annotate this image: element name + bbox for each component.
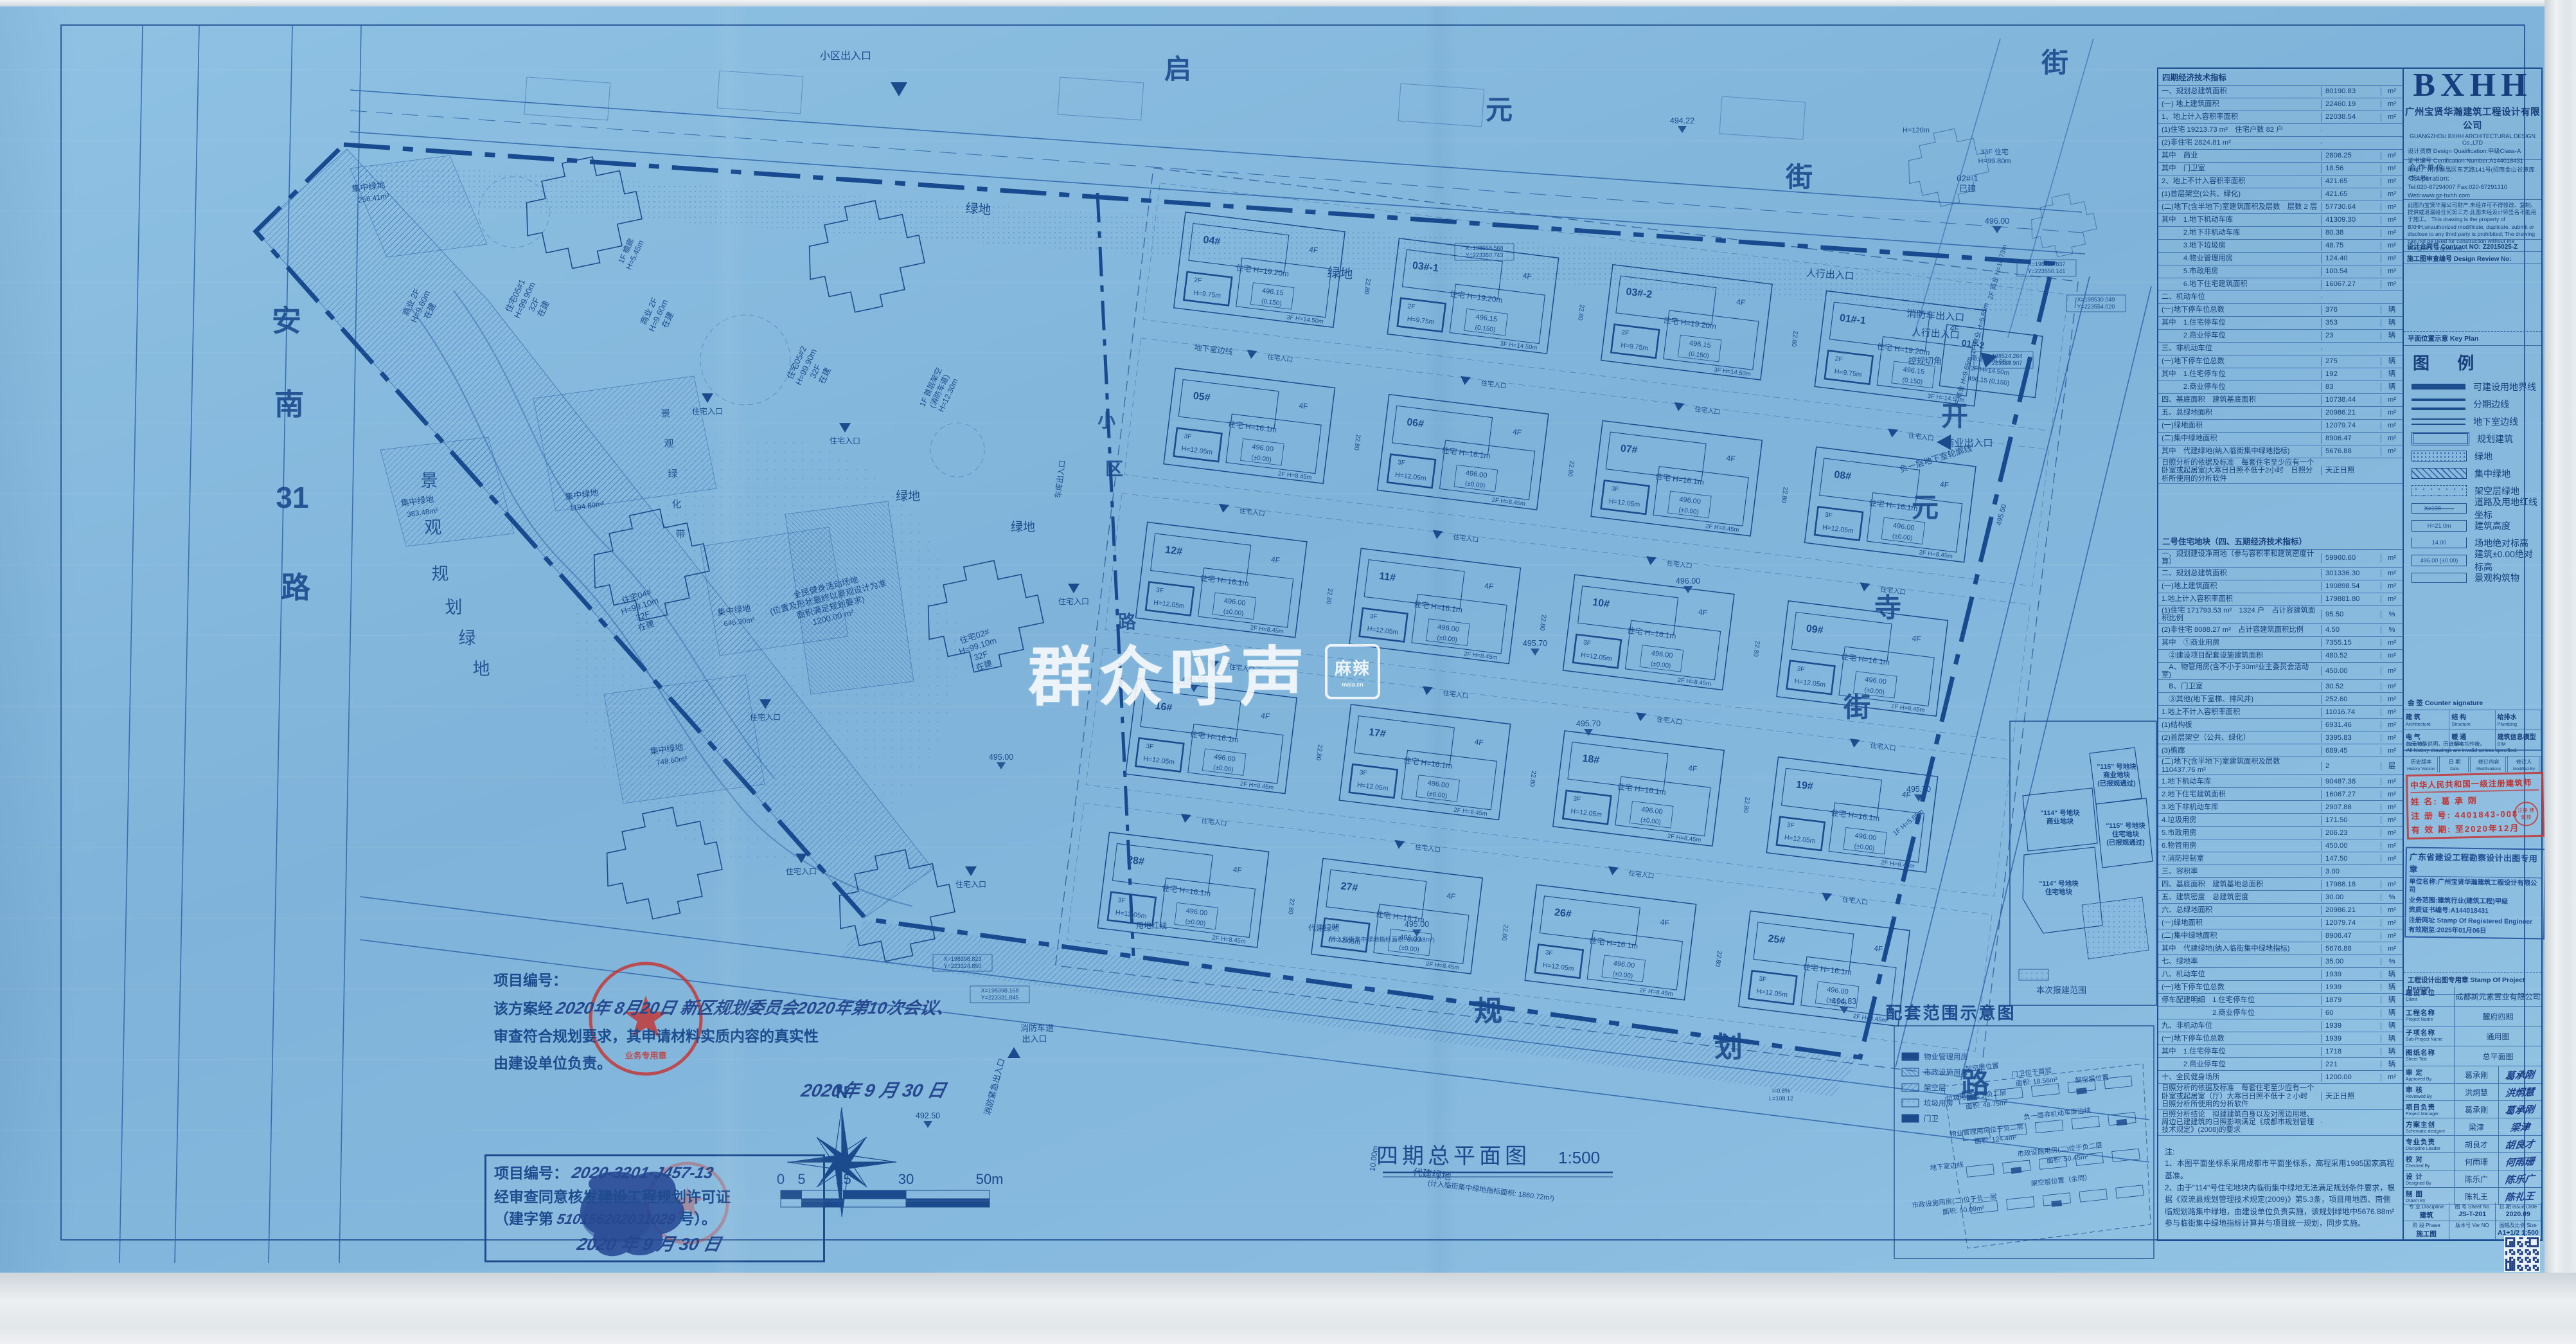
- qr-cell: [2513, 1241, 2515, 1243]
- plan-label: 住宅入口: [1239, 506, 1265, 518]
- plan-label: H=12.05m: [1570, 807, 1603, 819]
- qr-cell: [2505, 1267, 2507, 1269]
- building-outline: [2032, 193, 2097, 256]
- entry-arrow: [1646, 556, 1657, 566]
- entry-arrow: [1208, 660, 1219, 670]
- plan-label: 19#: [1795, 779, 1814, 792]
- blueprint-sheet: 04#4F住宅 H=19.20m2FH=9.75m496.15(0.150)3F…: [0, 6, 2545, 1273]
- handwriting: 2020年 8月20日 新区规划委员会2020年第10次会议、: [554, 995, 956, 1019]
- selev-swatch: 14.00: [2412, 537, 2467, 548]
- plan-label: 3F: [1759, 976, 1767, 983]
- cluster-part: [1387, 454, 1435, 488]
- entry-arrow: [702, 393, 713, 403]
- history-col: 历史版本History Version: [2404, 757, 2440, 773]
- qr-cell: [2527, 1257, 2529, 1259]
- plan-label: X=198398.823: [944, 956, 982, 962]
- plan-label: 划: [445, 598, 463, 617]
- plan-label: 面积: 124.4m²: [1975, 1134, 2018, 1146]
- road-name-ne: 街: [2041, 48, 2068, 78]
- plan-label: (已报规通过): [2106, 838, 2145, 847]
- copyright-panel: 此图为宝贤华瀚公司财产,未经许可不得修改、复制、提供或泄漏给任何第三方;此图未经…: [2404, 200, 2541, 240]
- table2-row: (一)地上建筑面积190898.54m²: [2158, 580, 2403, 593]
- plan-label: 架空层: [1924, 1083, 1946, 1092]
- plan-label: X=198535.837: [2028, 261, 2066, 267]
- plan-label: 4F: [1270, 555, 1281, 565]
- facility-building: [2035, 1120, 2063, 1133]
- plan-label: 住宅入口: [1694, 405, 1721, 417]
- qr-cell: [2525, 1241, 2527, 1243]
- cluster-part: [1601, 481, 1649, 514]
- qr-cell: [2525, 1265, 2527, 1267]
- plan-label: 22.80: [1500, 924, 1509, 942]
- table2: 一、规划建设净用地（参与容积率和建筑密度计算）59960.60m²二、规划总建筑…: [2158, 550, 2403, 1136]
- plan-label: 4F: [1874, 944, 1884, 954]
- qr-cell: [2511, 1237, 2513, 1239]
- elevation-mark: [1189, 685, 1198, 692]
- cluster-part: [1815, 506, 1863, 540]
- plan-label: 22.80: [1538, 614, 1547, 631]
- elevation-label: 495.70: [1576, 719, 1601, 728]
- plan-label: 住宅 H=19.20m: [1663, 315, 1717, 331]
- plan-label: 02#-1: [1957, 174, 1978, 183]
- plan-label: 用地红线: [1136, 920, 1167, 930]
- plan-label: 住宅 H=16.1m: [1655, 471, 1705, 487]
- table2-row: A、物管用房(含不小于30m²业主委员会活动室)450.00m²: [2158, 663, 2403, 681]
- plan-label: H=12.05m: [1784, 834, 1816, 845]
- facility-chip: [2076, 1088, 2087, 1095]
- design-review-no: 施工图审查编号 Design Review No:: [2404, 252, 2541, 264]
- qr-cell: [2535, 1237, 2537, 1239]
- drawing-scale: 1:500: [1558, 1148, 1600, 1167]
- qr-cell: [2517, 1243, 2519, 1245]
- belev-swatch: 496.00 (±0.00): [2412, 555, 2467, 566]
- plan-label: 住宅入口: [1453, 533, 1479, 544]
- qr-cell: [2507, 1237, 2509, 1239]
- qr-cell: [2527, 1241, 2529, 1243]
- plan-label: 面积: 48.75m²: [1966, 1099, 2009, 1111]
- road-name-internal: 小: [1097, 411, 1115, 431]
- qr-cell: [2521, 1269, 2523, 1271]
- plan-label: 4F: [1309, 245, 1319, 255]
- qr-cell: [2521, 1261, 2523, 1263]
- qr-cell: [2535, 1257, 2537, 1259]
- plan-label: 496.00: [1640, 805, 1663, 816]
- table2-row: 1.地上不计入容积率面积11016.74m²: [2158, 706, 2403, 719]
- stamp-blue-row: 有效期至:2025年01月06日: [2408, 926, 2541, 936]
- plan-label: 住宅入口: [1666, 559, 1692, 570]
- plan-label: 住宅 H=16.1m: [1617, 782, 1667, 797]
- table2-row: 五、建筑密度 总建筑密度30.00%: [2158, 891, 2403, 904]
- elevation-label: 495.70: [1182, 676, 1206, 685]
- table1-row: 3.地下垃圾房48.75m²: [2158, 240, 2403, 253]
- plan-label: 地下室边线: [1194, 342, 1233, 356]
- project-info-row: 设 计Designed By陈乐广陈乐广: [2404, 1170, 2541, 1188]
- qr-cell: [2529, 1269, 2531, 1271]
- plan-label: 4F: [1232, 865, 1243, 875]
- bxhh-logo: BXHH: [2404, 69, 2541, 102]
- plan-label: 住宅入口: [1415, 843, 1441, 854]
- sheet-meta-cell: 阶 段 Phase施工图: [2404, 1221, 2449, 1240]
- plan-label: 08#: [1833, 469, 1852, 482]
- qr-cell: [2509, 1241, 2511, 1243]
- table1-row: (二)集中绿地面积8906.47m²: [2158, 433, 2403, 445]
- plan-label: H=12.05m: [1367, 625, 1399, 636]
- road-west-line: [120, 26, 143, 1263]
- table2-row: 1.地上计入容积率面积179881.80m²: [2158, 593, 2403, 606]
- qr-cell: [2529, 1253, 2531, 1255]
- plan-label: 住宅入口: [830, 436, 860, 445]
- qr-cell: [2529, 1241, 2531, 1243]
- stamp-blue-row: 业务范围:建筑行业(建筑工程)甲级: [2409, 896, 2541, 906]
- green-swatch: [2412, 451, 2467, 461]
- table1-row: (2)非住宅 2824.81 m²: [2158, 137, 2403, 150]
- phase-swatch: [2412, 399, 2465, 410]
- qr-cell: [2513, 1251, 2515, 1253]
- plan-label: 住宅入口: [1480, 379, 1507, 390]
- qr-cell: [2535, 1261, 2537, 1263]
- project-info-row: 工程名称Project Name麓府四期: [2404, 1007, 2541, 1026]
- qr-cell: [2535, 1265, 2537, 1267]
- entry-arrow: [1635, 712, 1646, 722]
- table1-row: 2、地上不计入容积率面积421.65m²: [2158, 175, 2403, 188]
- plan-label: H=12.05m: [1153, 599, 1185, 611]
- qr-cell: [2513, 1237, 2515, 1239]
- keyplan-swatch: [2019, 969, 2048, 980]
- landscape-circle: [700, 315, 790, 405]
- plan-label: 住宅入口: [1908, 431, 1934, 443]
- plan-label: 商业地块: [2047, 817, 2074, 825]
- plan-label: 住宅入口: [1058, 596, 1089, 606]
- countersign-cell: 给排水Plumbing: [2496, 710, 2541, 730]
- plan-label: 地: [473, 659, 490, 679]
- entry-arrow: [839, 423, 851, 433]
- plan-label: 3F: [1611, 485, 1619, 493]
- entry-arrow: [1394, 840, 1405, 850]
- plan-label: 住宅入口: [692, 406, 723, 416]
- plan-label: 22.80: [1324, 588, 1333, 605]
- plan-label: 2F: [1194, 276, 1202, 284]
- plan-label: 09#: [1806, 623, 1824, 636]
- qr-cell: [2535, 1249, 2537, 1251]
- project-info-row: 审 核Reviewed By洪炯慧洪炯慧: [2404, 1084, 2541, 1101]
- facility-building: [2112, 1149, 2140, 1161]
- coop-cn: 合 作 单 位:: [2409, 164, 2445, 172]
- qr-cell: [2519, 1237, 2521, 1239]
- plan-label: H=12.05m: [1143, 755, 1175, 766]
- plan-label: 住宅入口: [1201, 816, 1227, 828]
- building-label: 1F 首层架空(消防车道)H=12.30m: [918, 366, 961, 417]
- qr-cell: [2511, 1263, 2513, 1265]
- road-name-west: 安: [272, 304, 301, 337]
- legend-label: 可建设用地界线: [2473, 381, 2536, 393]
- project-info-row: 图纸名称Sheet Title总平面图: [2404, 1046, 2541, 1066]
- plan-shape: [842, 1162, 896, 1170]
- qr-cell: [2529, 1251, 2531, 1253]
- qr-cell: [2513, 1239, 2515, 1241]
- qr-cell: [2529, 1243, 2531, 1245]
- qr-cell: [2525, 1249, 2527, 1251]
- qr-cell: [2507, 1261, 2509, 1263]
- province-design-stamp: 广东省建设工程勘察设计出图专用章 单位名称:广州宝贤华瀚建筑工程设计有限公司业务…: [2404, 847, 2545, 939]
- plan-label: 门卫: [1924, 1114, 1939, 1123]
- coop-en: Cooperation:: [2409, 175, 2449, 183]
- elevation-label: 496.00: [1985, 217, 2009, 226]
- road-name-east: 街: [1843, 692, 1870, 722]
- qr-cell: [2511, 1241, 2513, 1243]
- plan-label: 住宅 H=16.1m: [1200, 573, 1250, 588]
- qr-cell: [2537, 1269, 2539, 1271]
- qr-cell: [2511, 1269, 2513, 1271]
- phase-boundary: [1097, 193, 1133, 956]
- plan-label: H=12.05m: [1756, 987, 1788, 999]
- qr-cell: [2537, 1243, 2539, 1245]
- table2-row: 7.消防控制室147.50m²: [2158, 852, 2403, 865]
- qr-cell: [2527, 1253, 2529, 1255]
- project-info-row: 专业负责Discipline Leader胡良才胡良才: [2404, 1136, 2541, 1153]
- qr-cell: [2537, 1253, 2539, 1255]
- qr-cell: [2533, 1249, 2535, 1251]
- general-notes: 注:1、本图平面坐标系采用成都市平面坐标系，高程采用1985国家高程基准。2、由…: [2158, 1136, 2403, 1240]
- legend-label: 道路及用地红线坐标: [2474, 496, 2541, 521]
- permit-box: 项目编号： 2020-3201-J457-13 经审查同意核发建设工程规划许可证…: [484, 1154, 825, 1262]
- table1-row: 其中 代建绿地(纳入临街集中绿地指标)5676.88m²: [2158, 445, 2403, 458]
- plan-label: 绿: [668, 469, 677, 479]
- qr-cell: [2521, 1251, 2523, 1253]
- entry-arrow: [1218, 504, 1229, 514]
- qr-cell: [2509, 1249, 2511, 1251]
- plan-label: 4F: [1512, 427, 1522, 438]
- contract-no: 设计合同号 Contract NO: Z2015025-Z: [2404, 240, 2541, 252]
- plan-label: "115" 号地块: [2097, 762, 2136, 771]
- qr-cell: [2509, 1269, 2511, 1271]
- table1-row: (一)地下停车位总数275辆: [2158, 355, 2403, 368]
- table1-row: 其中 商业2806.25m²: [2158, 150, 2403, 163]
- plan-label: 住宅入口: [1229, 663, 1256, 674]
- elevation-mark: [1584, 729, 1593, 736]
- table2-row: 七、绿地率35.00%: [2158, 955, 2403, 968]
- plan-label: "114" 号地块: [2039, 879, 2079, 888]
- facility-chip: [2051, 1200, 2062, 1207]
- plan-label: 496.15: [1261, 287, 1284, 297]
- table2-row: 2.地下住宅建筑面积16067.27m²: [2158, 788, 2403, 801]
- plan-label: 4F: [1474, 737, 1484, 748]
- photo-paper-edge-top: [0, 0, 2576, 6]
- qr-cell: [2519, 1269, 2521, 1271]
- plan-label: 496.00: [1865, 676, 1887, 686]
- road-name-internal: 路: [1118, 612, 1137, 632]
- entry-arrow: [1849, 739, 1860, 748]
- plan-label: 住宅入口: [1628, 869, 1655, 881]
- biz-entry-arrow: [1937, 435, 1951, 450]
- context-building: [524, 77, 610, 120]
- plan-label: 商业地块: [2103, 771, 2130, 779]
- elevation-mark: [923, 1121, 932, 1128]
- plan-label: 496.00: [1892, 522, 1915, 532]
- cluster-part: [1398, 298, 1446, 332]
- building-label: 住宅02#H=99.10m32F在建: [955, 625, 1004, 676]
- plan-label: 住宅 H=16.1m: [1403, 755, 1453, 771]
- table1-row: (二)地下(含半地下)室建筑面积及层数 层数 2 层57730.64m²: [2158, 201, 2403, 214]
- elevation-mark: [1683, 586, 1692, 593]
- thick-swatch: [2412, 384, 2465, 390]
- qr-cell: [2529, 1239, 2531, 1241]
- registered-architect-stamp: 中华人民共和国一级注册建筑师 姓 名: 葛 承 刚注 册 号: 4401843-…: [2406, 772, 2545, 839]
- qr-cell: [2509, 1251, 2511, 1253]
- road-west-line: [175, 26, 199, 1263]
- facility-legend-swatch: [1902, 1115, 1919, 1122]
- approval-line1: 项目编号：: [493, 968, 1303, 990]
- cluster-part: [1573, 634, 1621, 668]
- entry-arrow: [1821, 893, 1832, 902]
- table1-row: 其中 1.住宅停车位192辆: [2158, 368, 2403, 381]
- sheet-meta: 专 业 Discipline建筑图 号 Sheet NoJS-T-201日 期 …: [2404, 1203, 2541, 1240]
- plan-label: 面积: 50.09m²: [1942, 1205, 1985, 1217]
- plan-label: H=9.75m: [1621, 341, 1649, 352]
- qr-cell: [2535, 1245, 2537, 1247]
- table1-row: 6.地下住宅建筑面积16067.27m²: [2158, 278, 2403, 291]
- legend-label: 规划建筑: [2477, 433, 2513, 445]
- elevation-label: 492.50: [916, 1111, 940, 1120]
- table2-row: 停车配建明细 1.住宅停车位1879辆: [2158, 994, 2403, 1007]
- plan-label: 16#: [1155, 701, 1173, 713]
- plan-label: 住宅 H=16.1m: [1627, 625, 1677, 641]
- qr-cell: [2525, 1251, 2527, 1253]
- central-green: [604, 675, 765, 803]
- qr-cell: [2537, 1239, 2539, 1241]
- plan-label: "114" 号地块: [2040, 809, 2080, 817]
- table2-row: B、门卫室30.52m²: [2158, 680, 2403, 693]
- permit-line2: 经审查同意核发建设工程规划许可证: [494, 1186, 815, 1208]
- height-swatch: H=21.0m: [2412, 520, 2467, 532]
- facility-legend-swatch: [1902, 1084, 1919, 1091]
- qr-cell: [2529, 1259, 2531, 1261]
- qr-cell: [2525, 1257, 2527, 1259]
- plan-label: 住宅入口: [786, 866, 817, 876]
- countersign-header: 会 签 Counter signature: [2404, 696, 2541, 710]
- facility-chip: [2117, 1119, 2127, 1126]
- qr-cell: [2511, 1265, 2513, 1267]
- plan-label: 住宅入口: [1842, 895, 1869, 907]
- plan-label: Y=223550.141: [2028, 268, 2066, 274]
- plan-label: 绿地: [1011, 520, 1035, 534]
- plan-label: 住宅 H=16.1m: [1413, 599, 1463, 614]
- plan-label: 496.00: [1252, 443, 1274, 453]
- entry-arrow: [1180, 814, 1191, 823]
- plan-label: 4F: [1299, 401, 1309, 411]
- table2-row: 三、容积率3.00: [2158, 865, 2403, 878]
- qr-cell: [2521, 1253, 2523, 1255]
- legend-label: 地下室边线: [2473, 415, 2518, 428]
- plan-label: 496.00: [1465, 469, 1488, 479]
- permit-date-handwritten: 2020 年 9 月 30 日: [575, 1230, 724, 1255]
- qr-cell: [2505, 1239, 2507, 1241]
- road-name-internal: 区: [1105, 459, 1123, 479]
- main-entry-arrow: [891, 82, 907, 96]
- table1-row: 五、总绿地面积20986.21m²: [2158, 407, 2403, 420]
- qr-cell: [2537, 1237, 2539, 1239]
- plan-label: 绿地: [965, 201, 992, 218]
- qr-cell: [2519, 1245, 2521, 1247]
- countersign-cell: 建 筑Architecture: [2404, 710, 2449, 730]
- title-block: 四期经济技术指标 一、规划总建筑面积80190.83m²(一) 地上建筑面积22…: [2157, 67, 2543, 1241]
- project-info-row: 建设单位Client成都新元素置业有限公司: [2404, 987, 2541, 1007]
- plan-label: 规: [432, 564, 449, 584]
- note-line: 2、由于"114"号住宅地块内临街集中绿地无法满足规划条件要求，根据《双流县规划…: [2165, 1182, 2396, 1230]
- table2-row: 3.地下非机动车库2907.88m²: [2158, 801, 2403, 814]
- qr-cell: [2511, 1267, 2513, 1269]
- plan-label: 住宅地块: [2112, 830, 2139, 838]
- qr-cell: [2513, 1253, 2515, 1255]
- plan-label: 496.00: [1854, 832, 1877, 842]
- plan-label: 住宅入口: [1443, 688, 1469, 700]
- plan-label: H=12.05m: [1822, 524, 1854, 535]
- table2-row: 十、全民健身场所1200.00m²: [2158, 1071, 2403, 1084]
- legend-item: 地下室边线: [2404, 413, 2541, 430]
- building-label: 住宅05#2H=99.90m32F在建: [784, 343, 837, 395]
- history-col: 修订人Modified By: [2508, 757, 2541, 773]
- plan-label: "115" 号地块: [2106, 821, 2145, 830]
- context-building: [1719, 96, 1806, 139]
- stamp-blue-row: 注册网址 Stamp Of Registered Engineer: [2408, 916, 2541, 926]
- table1-row: 1、地上计入容积率面积22038.54m²: [2158, 111, 2403, 124]
- plan-label: 代建绿地: [1308, 923, 1339, 933]
- plan-label: 住宅 H=16.1m: [1869, 497, 1919, 513]
- plan-shape: [844, 1190, 907, 1199]
- plan-label: 3F: [1146, 743, 1154, 751]
- entry-arrow: [1887, 429, 1898, 438]
- qr-cell: [2505, 1261, 2507, 1263]
- table2-row: 二、规划总建筑面积301336.30m²: [2158, 568, 2403, 580]
- qr-cell: [2533, 1265, 2535, 1267]
- plan-label: 06#: [1406, 417, 1425, 429]
- plan-label: 4F: [1939, 479, 1950, 490]
- table2-row: 一、规划建设净用地（参与容积率和建筑密度计算）59960.60m²: [2158, 550, 2403, 568]
- approval-line2: 该方案经 2020年 8月20日 新区规划委员会2020年第10次会议、: [493, 995, 1303, 1019]
- legend-items: 可建设用地界线分期边线地下室边线规划建筑绿地集中绿地架空层绿地X=198….…道…: [2404, 378, 2541, 586]
- cluster-part: [1349, 764, 1398, 798]
- plan-label: 496.00: [1679, 496, 1701, 506]
- plan-label: 496.15: [1475, 313, 1498, 323]
- plan-shape: [906, 1190, 990, 1199]
- table2-row: (1)住宅 171793.53 m² 1324 户 占计容建筑面积比例95.50…: [2158, 606, 2403, 624]
- elevation-label: 495.00: [989, 753, 1013, 762]
- table1-row: 其中 1.住宅停车位353辆: [2158, 317, 2403, 330]
- plan-label: 22.80: [1528, 770, 1537, 787]
- qr-cell: [2505, 1251, 2507, 1253]
- plan-label: 住宅入口: [750, 712, 781, 722]
- plan-label: 496.15: [1689, 339, 1711, 350]
- legend-label: 分期边线: [2473, 398, 2509, 411]
- plan-label: 27#: [1340, 881, 1359, 893]
- table2-row: 八、机动车位1939辆: [2158, 968, 2403, 981]
- stamp-blue-row: 资质证书编号:A144018431: [2409, 906, 2541, 917]
- qr-cell: [2521, 1243, 2523, 1245]
- plan-label: (计入临街集中绿地指标面积: 1860.72m²): [1427, 1178, 1554, 1203]
- qr-cell: [2511, 1249, 2513, 1251]
- facility-inset-title: 配套范围示意图: [1885, 1003, 2016, 1023]
- facility-building: [2007, 1197, 2034, 1210]
- legend-label: 建筑高度: [2474, 519, 2510, 532]
- table1-row: 2.商业停车位83辆: [2158, 381, 2403, 394]
- qr-cell: [2533, 1251, 2535, 1253]
- keyplan-note: 本次报建范围: [2036, 985, 2086, 995]
- plan-label: Y=223557.907: [1985, 360, 2023, 366]
- plan-label: 22.80: [1315, 744, 1324, 761]
- plan-label: 4F: [1698, 607, 1708, 618]
- plan-label: H=12.05m: [1181, 445, 1213, 456]
- building-label: 商业 2FH=9.60m在建: [637, 294, 679, 337]
- qr-code: [2504, 1236, 2540, 1272]
